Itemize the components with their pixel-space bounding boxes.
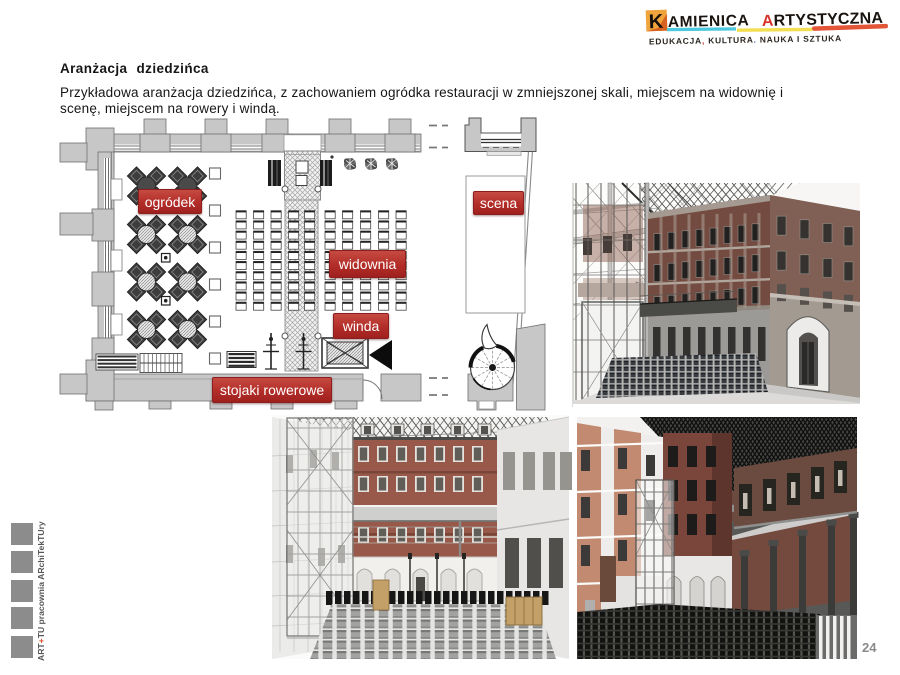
- svg-text:EDUKACJA, KULTURA. NAUKA I SZT: EDUKACJA, KULTURA. NAUKA I SZTUKA: [649, 33, 842, 46]
- svg-text:K: K: [648, 11, 664, 34]
